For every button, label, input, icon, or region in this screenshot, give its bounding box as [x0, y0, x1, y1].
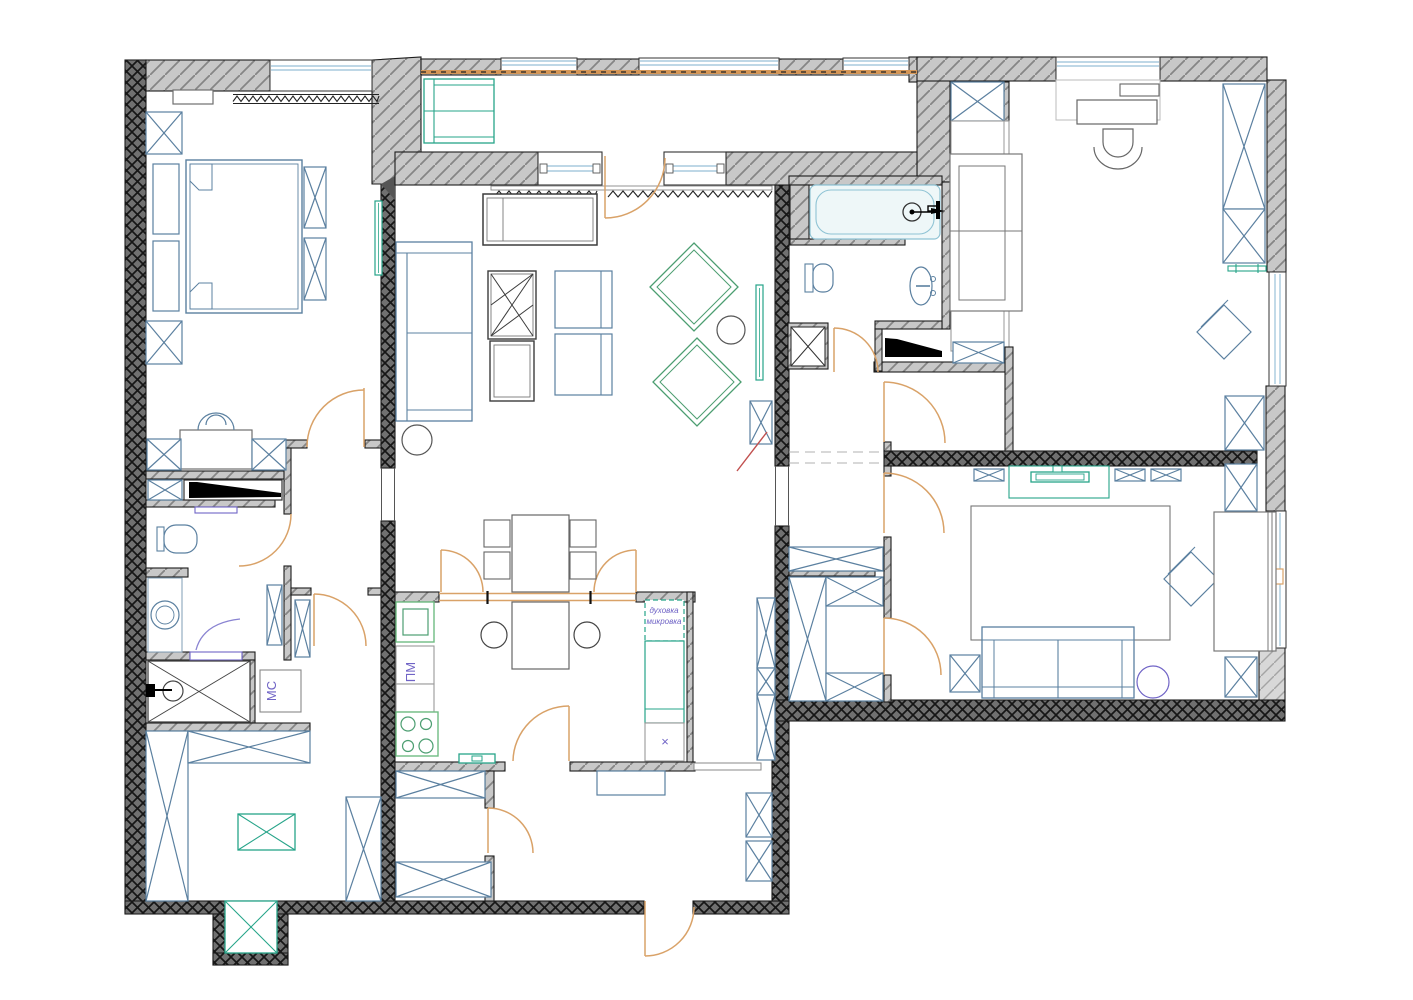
svg-text:микровка: микровка — [646, 617, 682, 626]
svg-text:духовка: духовка — [649, 606, 679, 615]
svg-text:ПМ: ПМ — [403, 662, 418, 682]
svg-text:×: × — [661, 734, 669, 749]
svg-text:МС: МС — [264, 681, 279, 701]
